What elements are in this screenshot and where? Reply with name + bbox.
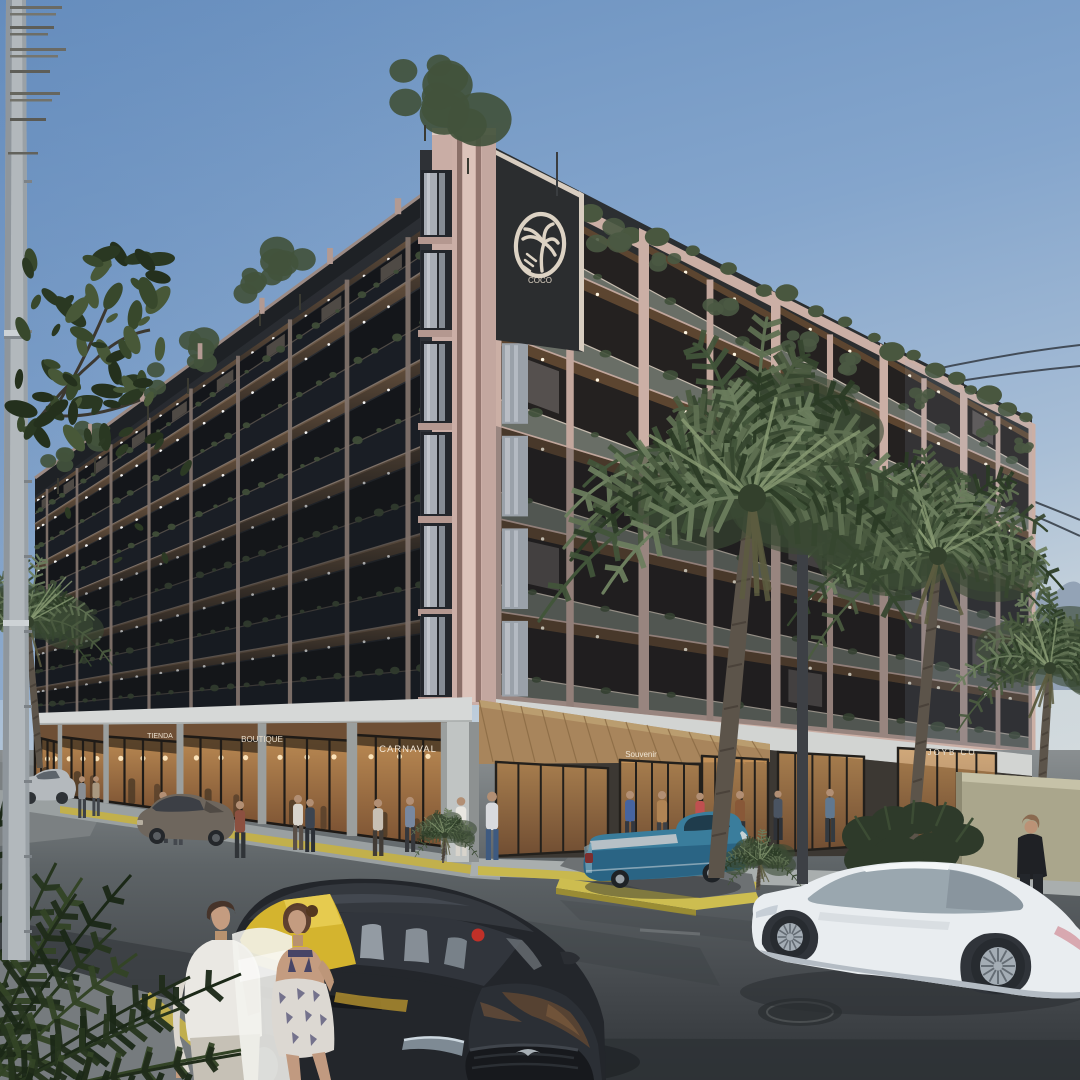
svg-text:Souvenir: Souvenir <box>625 750 657 759</box>
svg-text:COCO: COCO <box>528 276 552 285</box>
svg-text:TIENDA: TIENDA <box>147 733 173 740</box>
svg-text:JOYB CO: JOYB CO <box>927 748 976 757</box>
svg-text:CARNAVAL: CARNAVAL <box>379 744 437 755</box>
svg-text:BOUTIQUE: BOUTIQUE <box>241 735 283 744</box>
